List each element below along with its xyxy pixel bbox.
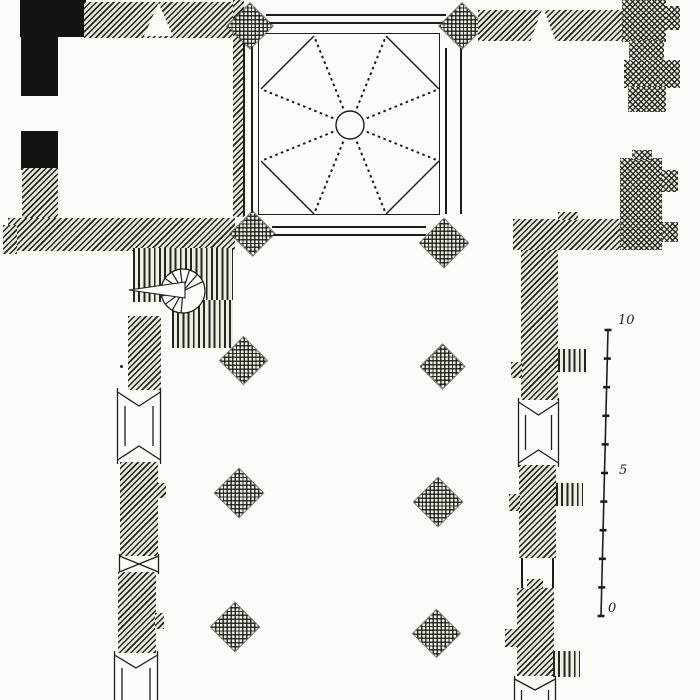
window-bay-icon xyxy=(517,398,560,467)
crossing-pier-sw xyxy=(231,212,275,256)
ne-pier-complex xyxy=(666,6,680,30)
crossing-west-wall-line xyxy=(251,36,253,216)
crossing-east-wall-line xyxy=(445,48,447,214)
right-aisle-wall xyxy=(521,250,558,400)
se-pier-complex xyxy=(662,222,678,242)
nw-south-buttress xyxy=(3,225,17,254)
crossing-pier-se xyxy=(420,219,468,267)
left-aisle-wall-nub xyxy=(157,483,166,498)
right-aisle-wall-nub xyxy=(553,651,580,677)
se-pier-complex xyxy=(662,170,678,192)
chapel-south-wall-bump xyxy=(558,212,578,220)
crossing-east-wall-line xyxy=(460,48,462,214)
diamond-pier-icon xyxy=(421,345,465,389)
nw-room-west-wall-solid xyxy=(21,0,58,170)
nw-west-window-notch xyxy=(19,96,60,131)
right-aisle-wall-nub xyxy=(558,349,586,372)
right-aisle-wall xyxy=(517,588,554,676)
left-aisle-wall xyxy=(118,572,156,653)
left-aisle-wall xyxy=(128,316,161,390)
se-pier-complex xyxy=(620,158,662,250)
engraving-dot xyxy=(120,365,123,368)
right-aisle-wall-nub xyxy=(511,362,522,378)
diamond-pier-icon xyxy=(414,478,462,526)
spiral-stair-icon xyxy=(128,262,220,322)
right-aisle-wall-nub xyxy=(505,629,518,647)
right-aisle-wall-nub xyxy=(509,494,520,511)
scale-label-top: 10 xyxy=(618,314,644,330)
diamond-pier-icon xyxy=(215,469,263,517)
right-aisle-gap-line xyxy=(521,558,523,589)
chapel-north-wall xyxy=(478,10,632,41)
window-bay-icon xyxy=(118,554,160,574)
window-bay-icon xyxy=(116,388,162,464)
right-aisle-wall xyxy=(519,465,556,558)
ne-pier-complex xyxy=(622,0,666,42)
window-bay-icon xyxy=(513,676,557,700)
ne-pier-complex xyxy=(624,60,680,88)
scale-label-middle: 5 xyxy=(619,464,639,480)
right-aisle-wall-bump xyxy=(527,579,543,589)
crossing-north-wall-line xyxy=(266,14,446,16)
diamond-pier-icon xyxy=(211,603,259,651)
ne-pier-complex xyxy=(628,86,666,112)
crossing-north-wall-line xyxy=(266,22,446,24)
left-aisle-wall-nub xyxy=(155,613,164,629)
right-aisle-wall-nub xyxy=(556,483,583,506)
left-aisle-wall xyxy=(120,462,158,556)
crossing-south-wall-line xyxy=(272,226,426,228)
window-bay-icon xyxy=(113,651,159,700)
crossing-west-wall-line xyxy=(243,36,245,216)
scale-label-bottom: 0 xyxy=(608,602,624,618)
se-pier-complex xyxy=(632,150,652,160)
rib-vault-icon xyxy=(258,33,440,215)
floor-plan-canvas: 10 5 0 xyxy=(0,0,700,700)
crossing-south-wall-line xyxy=(272,234,426,236)
diamond-pier-icon xyxy=(413,610,460,657)
nw-room-south-wall xyxy=(8,218,235,251)
right-aisle-gap-line xyxy=(552,558,554,589)
